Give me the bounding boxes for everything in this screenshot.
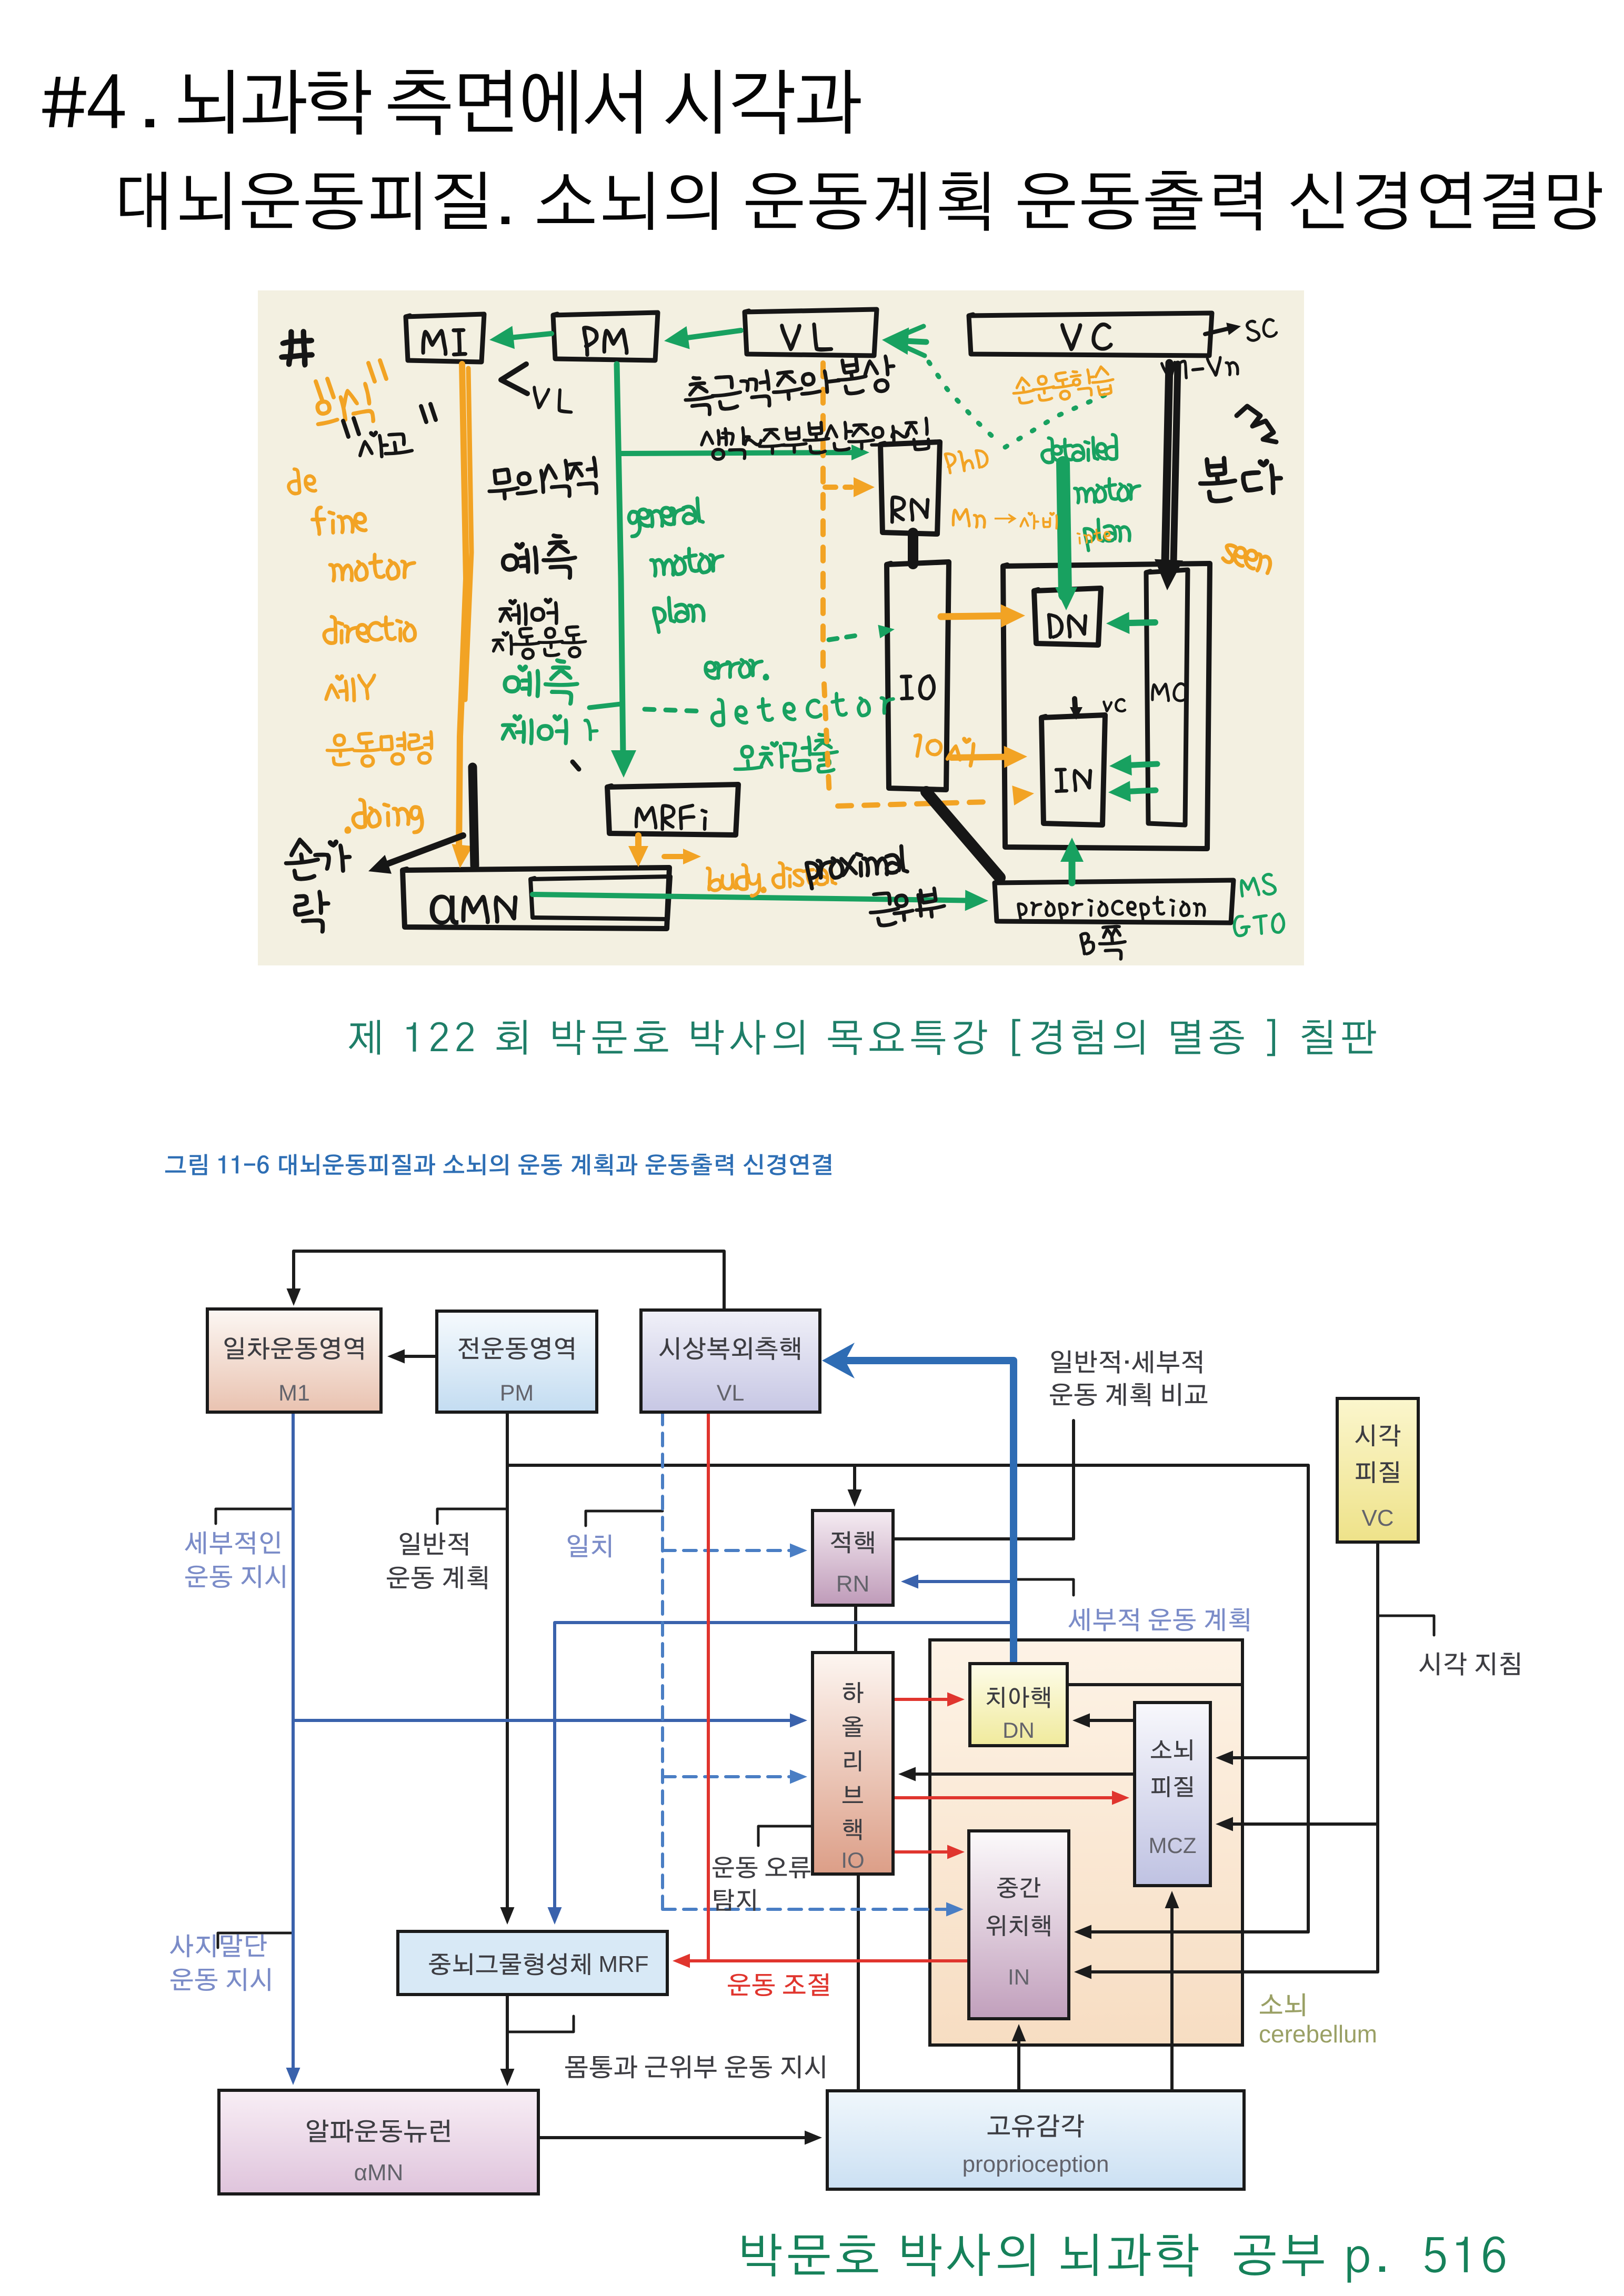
svg-text:RN: RN [836,1571,870,1597]
svg-text:IO: IO [841,1848,864,1872]
svg-text:IN: IN [1008,1965,1030,1989]
svg-text:PM: PM [500,1381,534,1406]
svg-text:cerebellum: cerebellum [1259,2020,1377,2048]
svg-text:VC: VC [1361,1505,1394,1531]
svg-text:VL: VL [717,1381,745,1406]
svg-text:αMN: αMN [354,2160,404,2186]
svg-text:proprioception: proprioception [963,2151,1109,2177]
svg-text:MCZ: MCZ [1149,1833,1197,1858]
svg-text:DN: DN [1003,1718,1035,1743]
svg-text:MRF: MRF [598,1951,648,1977]
svg-text:M1: M1 [278,1381,310,1406]
